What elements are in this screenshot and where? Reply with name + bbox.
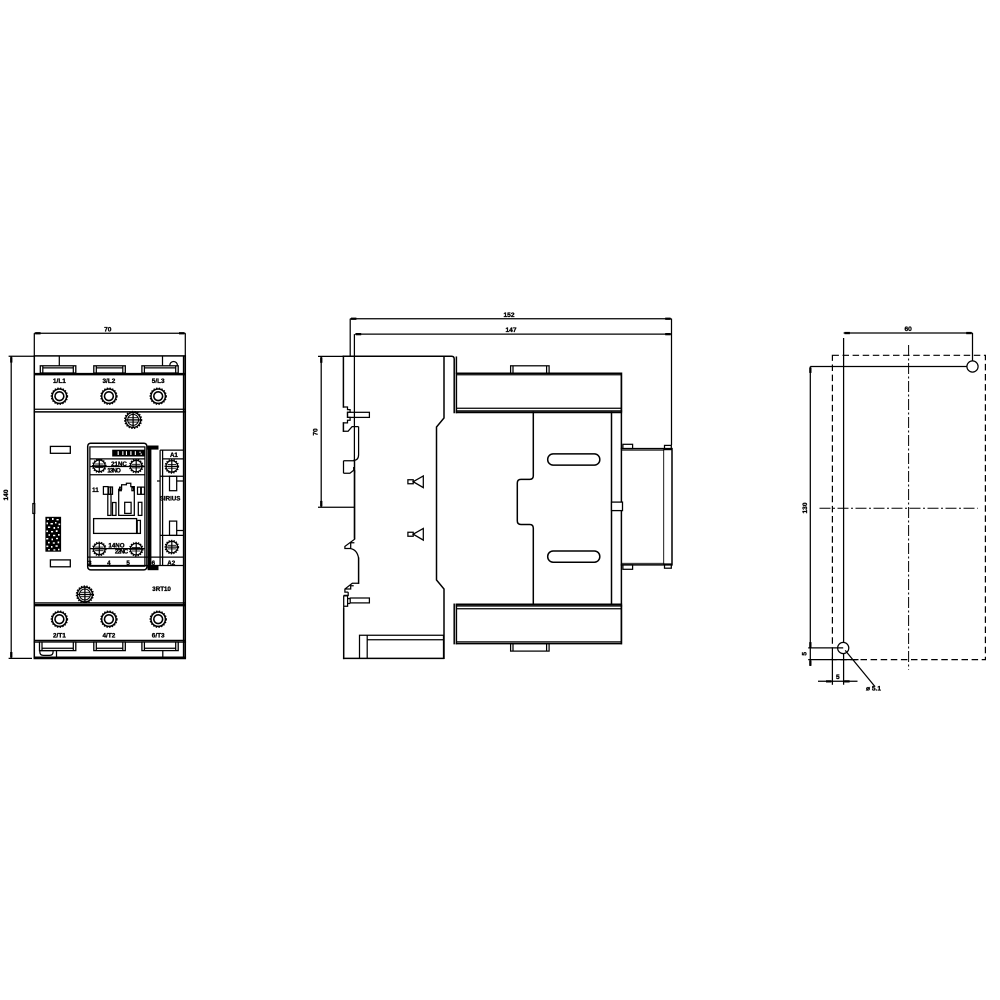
- svg-text:ø 5.1: ø 5.1: [866, 686, 881, 693]
- svg-text:5: 5: [836, 674, 840, 681]
- svg-text:3/L2: 3/L2: [103, 378, 116, 385]
- svg-text:5/L3: 5/L3: [152, 378, 165, 385]
- svg-text:1/L1: 1/L1: [53, 378, 66, 385]
- svg-text:3RT10: 3RT10: [152, 586, 171, 593]
- svg-text:140: 140: [3, 489, 10, 500]
- svg-text:6/T3: 6/T3: [152, 632, 165, 639]
- svg-text:152: 152: [503, 312, 514, 319]
- svg-text:60: 60: [905, 326, 913, 333]
- svg-text:11: 11: [92, 487, 99, 494]
- svg-text:70: 70: [312, 428, 319, 436]
- svg-text:SIRIUS: SIRIUS: [160, 495, 181, 502]
- svg-text:70: 70: [104, 326, 112, 333]
- svg-text:13NO: 13NO: [107, 467, 121, 474]
- svg-text:22NC: 22NC: [115, 549, 129, 556]
- svg-text:5: 5: [801, 652, 808, 656]
- svg-text:A1: A1: [170, 452, 178, 459]
- svg-text:130: 130: [802, 502, 809, 513]
- svg-text:147: 147: [505, 327, 516, 334]
- svg-text:4/T2: 4/T2: [103, 632, 116, 639]
- svg-text:2/T1: 2/T1: [53, 632, 66, 639]
